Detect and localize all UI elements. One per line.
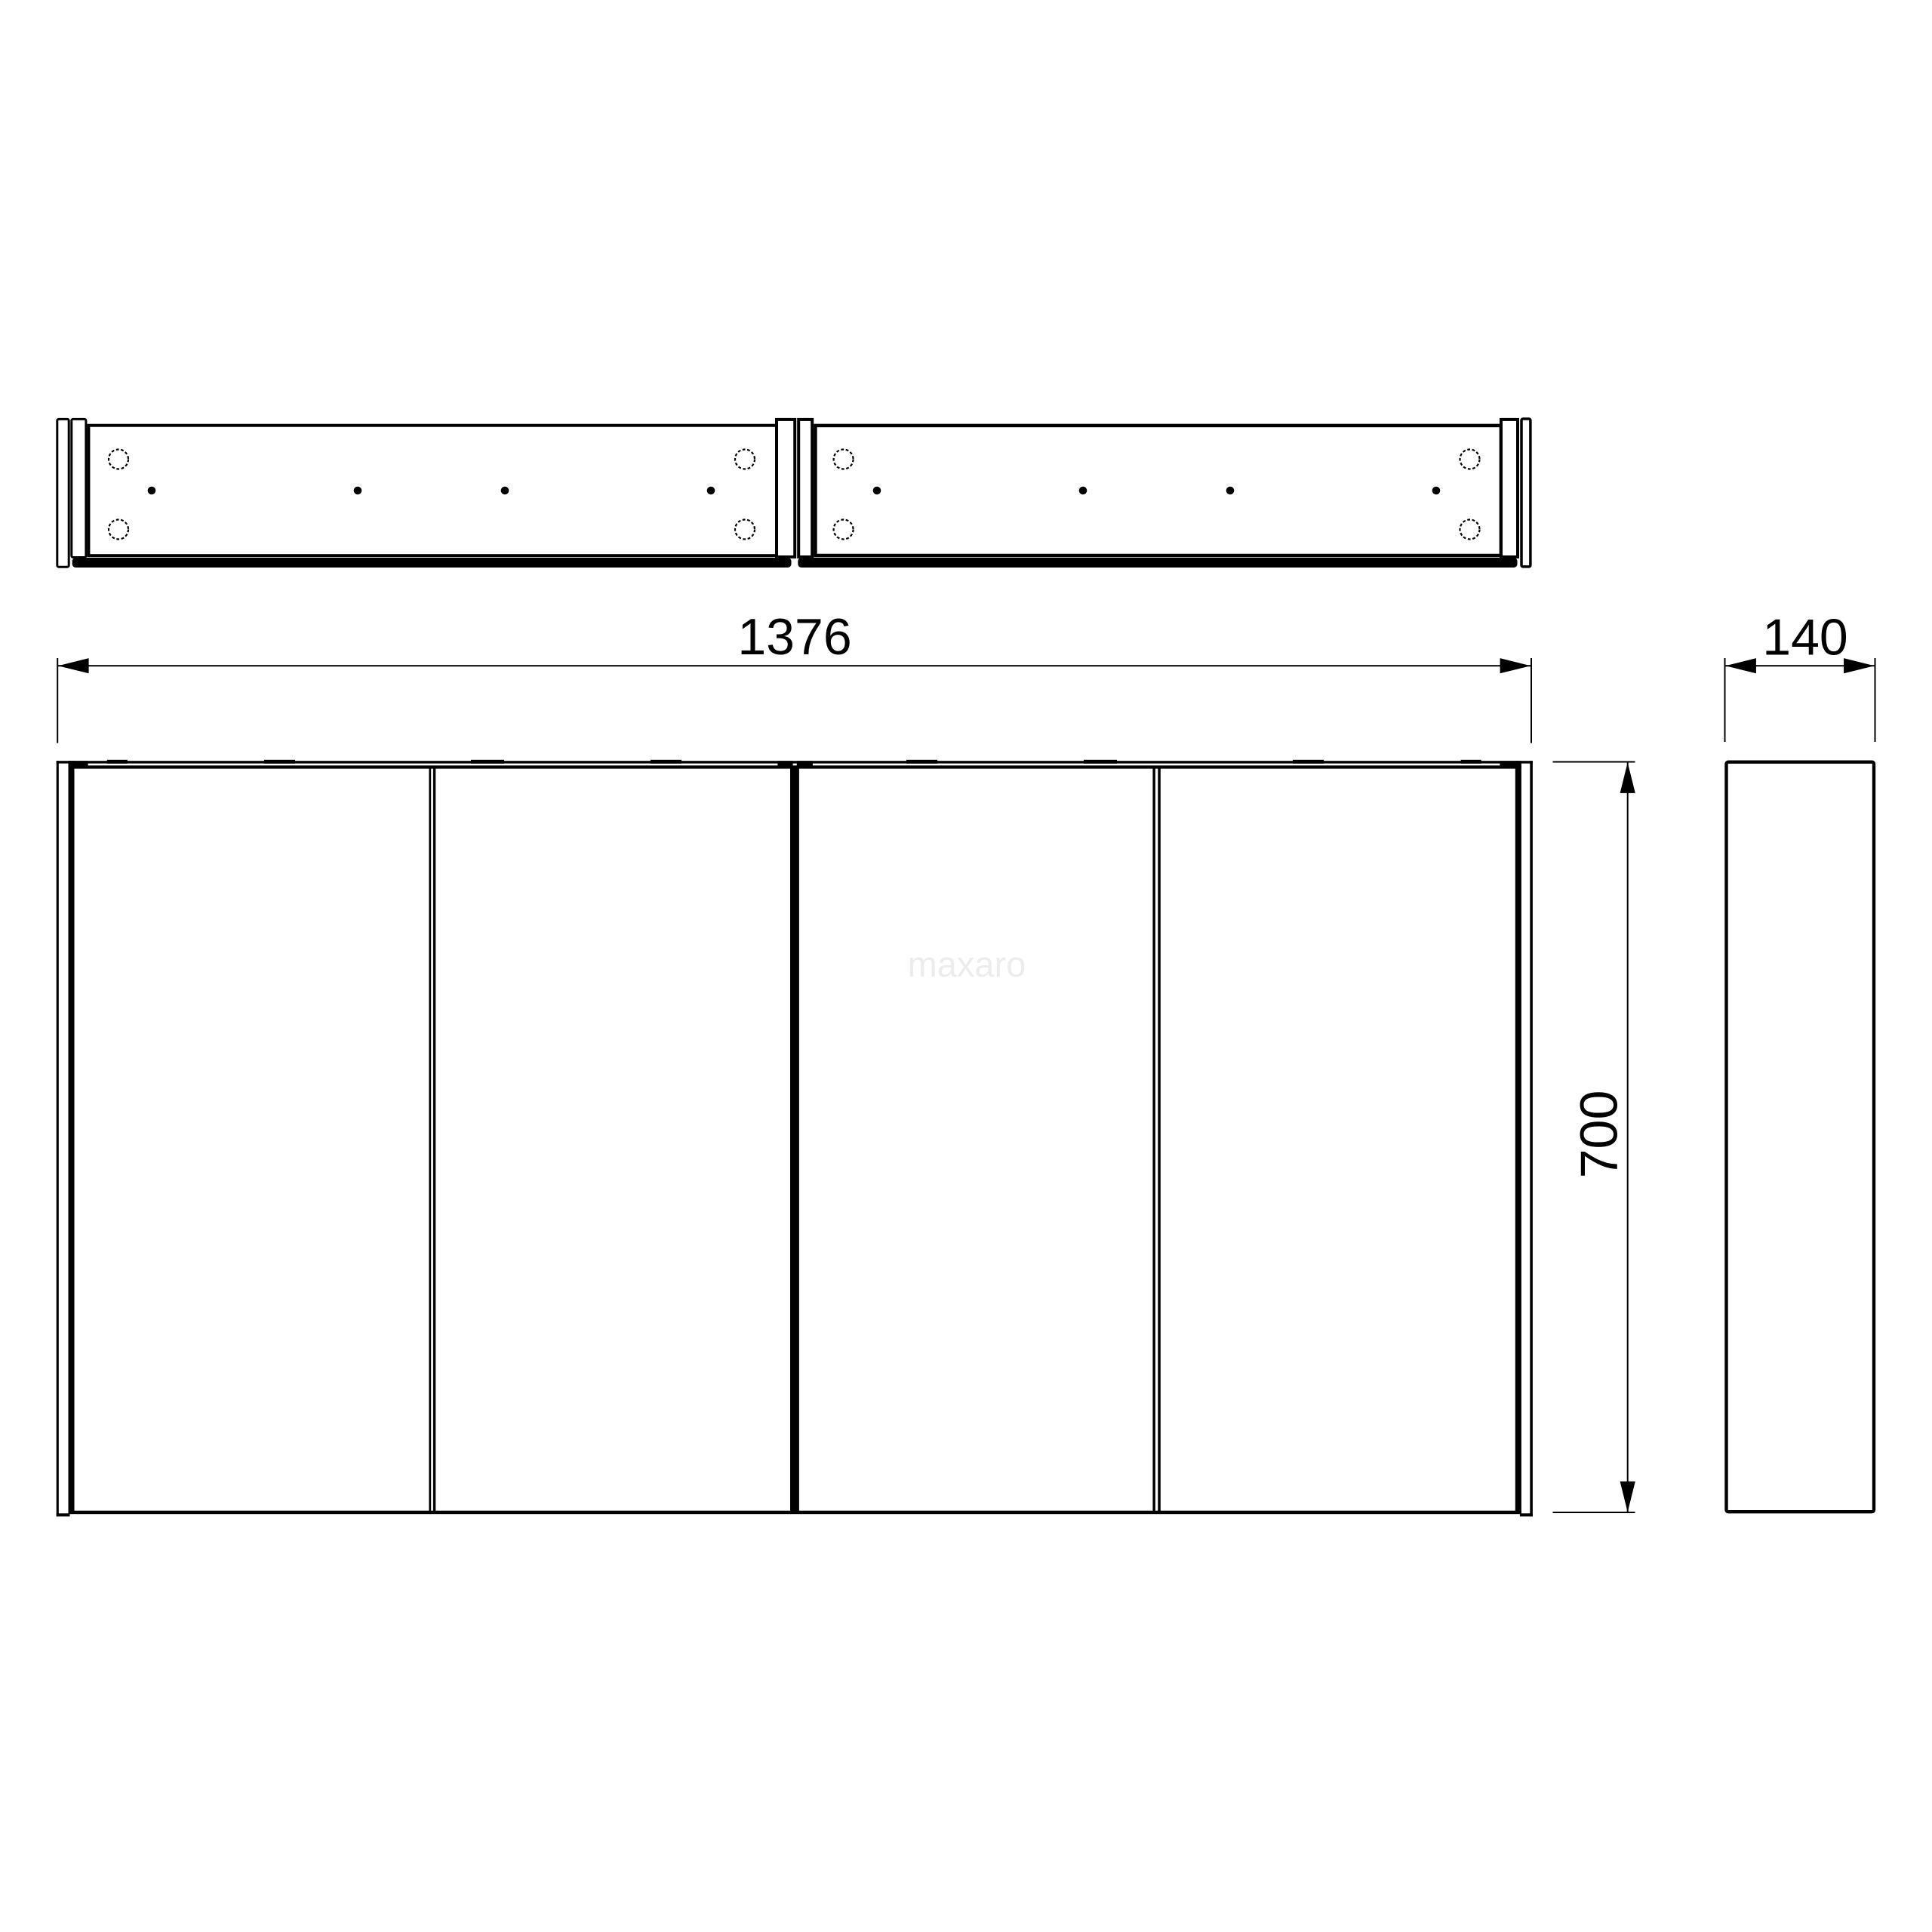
- svg-text:700: 700: [1570, 1091, 1629, 1179]
- svg-text:140: 140: [1762, 609, 1847, 666]
- svg-text:maxaro: maxaro: [908, 944, 1026, 984]
- svg-text:1376: 1376: [737, 608, 851, 666]
